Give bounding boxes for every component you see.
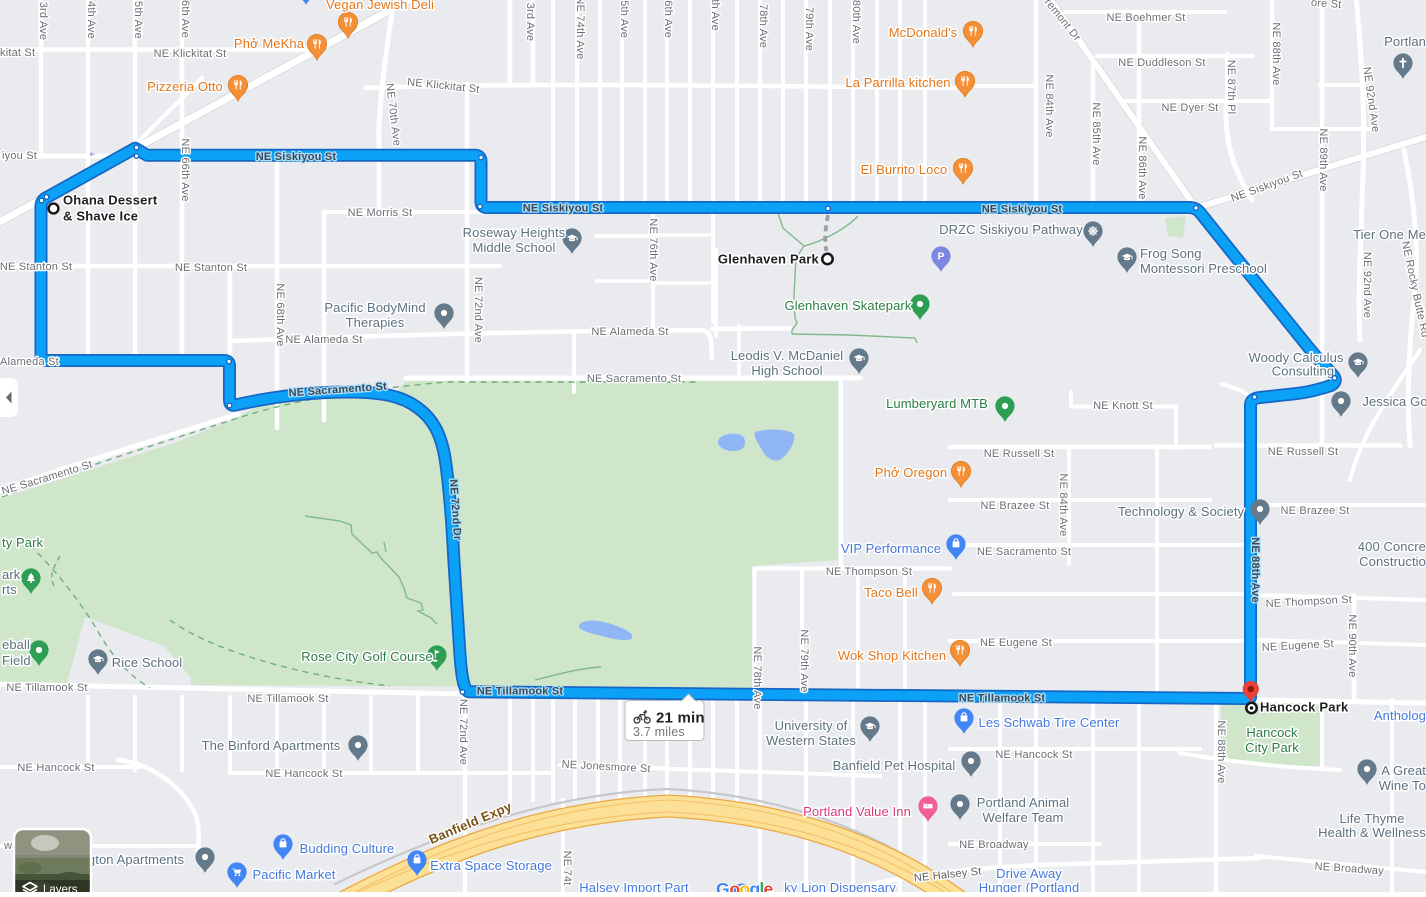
svg-text:7th Ave: 7th Ave <box>709 0 721 31</box>
svg-text:iyou St: iyou St <box>2 150 37 162</box>
svg-text:P: P <box>937 251 944 263</box>
svg-text:Glenhaven Skatepark: Glenhaven Skatepark <box>785 298 912 313</box>
svg-text:6th Ave: 6th Ave <box>179 0 191 38</box>
svg-text:Halsey Import Part: Halsey Import Part <box>579 880 689 892</box>
svg-text:79th Ave: 79th Ave <box>803 7 815 51</box>
svg-text:Western States: Western States <box>766 733 856 748</box>
svg-text:Pacific Market: Pacific Market <box>252 867 335 882</box>
svg-text:Portland Animal: Portland Animal <box>977 795 1070 810</box>
svg-text:ky Lion Dispensary: ky Lion Dispensary <box>784 880 896 892</box>
svg-text:NE 90th Ave: NE 90th Ave <box>1346 614 1358 677</box>
svg-text:NE Russell St: NE Russell St <box>984 448 1054 460</box>
svg-text:NE Thompson St: NE Thompson St <box>826 566 912 578</box>
svg-text:Roseway Heights: Roseway Heights <box>463 225 566 240</box>
svg-text:Technology & Society: Technology & Society <box>1118 504 1245 519</box>
svg-text:NE Duddleson St: NE Duddleson St <box>1118 57 1205 69</box>
svg-text:gton Apartments: gton Apartments <box>88 852 185 867</box>
svg-text:NE Morris St: NE Morris St <box>348 207 413 219</box>
svg-text:rts: rts <box>2 582 17 597</box>
svg-text:Rice School: Rice School <box>112 655 182 670</box>
svg-text:NE 74th Ave: NE 74th Ave <box>574 0 586 60</box>
svg-text:Health & Wellness: Health & Wellness <box>1318 825 1426 840</box>
svg-text:Leodis V. McDaniel: Leodis V. McDaniel <box>731 348 844 363</box>
svg-text:Field: Field <box>2 653 31 668</box>
svg-text:NE 88th Ave: NE 88th Ave <box>1249 537 1261 603</box>
svg-text:kitat St: kitat St <box>0 47 35 59</box>
svg-text:Life Thyme: Life Thyme <box>1339 811 1404 826</box>
svg-text:NE Hancock St: NE Hancock St <box>265 768 342 780</box>
svg-text:NE Tillamook St: NE Tillamook St <box>959 693 1046 705</box>
svg-text:NE Tillamook St: NE Tillamook St <box>6 682 87 694</box>
svg-text:Consulting: Consulting <box>1272 364 1334 379</box>
svg-text:21 min: 21 min <box>656 710 705 727</box>
svg-text:Layers: Layers <box>43 884 78 892</box>
svg-text:Extra Space Storage: Extra Space Storage <box>430 858 552 873</box>
svg-text:Constructio: Constructio <box>1359 554 1426 569</box>
svg-text:NE Hancock St: NE Hancock St <box>17 762 94 774</box>
svg-text:Wok Shop Kitchen: Wok Shop Kitchen <box>838 648 946 663</box>
svg-text:NE 89th Ave: NE 89th Ave <box>1317 128 1329 191</box>
svg-text:Therapies: Therapies <box>346 315 405 330</box>
svg-text:NE Knott St: NE Knott St <box>1093 400 1153 412</box>
svg-text:NE Sacramento St: NE Sacramento St <box>977 546 1071 558</box>
svg-text:Phở Oregon: Phở Oregon <box>875 465 947 480</box>
svg-text:Hancock: Hancock <box>1246 725 1298 740</box>
svg-text:3rd Ave: 3rd Ave <box>37 2 49 41</box>
svg-text:Hunger (Portland: Hunger (Portland <box>979 880 1080 892</box>
svg-text:NE Klickitat St: NE Klickitat St <box>154 48 227 60</box>
svg-text:eball: eball <box>2 637 30 652</box>
svg-text:Portland Value Inn: Portland Value Inn <box>803 804 911 819</box>
svg-text:Taco Bell: Taco Bell <box>864 585 918 600</box>
svg-text:NE 88th Ave: NE 88th Ave <box>1270 22 1282 85</box>
svg-text:80th Ave: 80th Ave <box>850 0 862 44</box>
svg-text:NE Eugene St: NE Eugene St <box>980 637 1052 649</box>
svg-text:NE 74t: NE 74t <box>561 851 573 886</box>
svg-text:NE Russell St: NE Russell St <box>1268 446 1338 458</box>
svg-text:NE Brazee St: NE Brazee St <box>1280 505 1349 517</box>
svg-text:Portlan: Portlan <box>1384 34 1426 49</box>
svg-text:NE 68th Ave: NE 68th Ave <box>274 283 286 346</box>
svg-text:NE 66th Ave: NE 66th Ave <box>179 138 191 201</box>
svg-text:Antholog: Antholog <box>1374 708 1426 723</box>
svg-text:76th Ave: 76th Ave <box>662 0 674 38</box>
svg-text:Jessica Go: Jessica Go <box>1362 394 1426 409</box>
svg-text:VIP Performance: VIP Performance <box>841 541 941 556</box>
svg-text:A Great: A Great <box>1381 763 1426 778</box>
svg-text:Budding Culture: Budding Culture <box>300 841 395 856</box>
svg-text:Les Schwab Tire Center: Les Schwab Tire Center <box>979 715 1121 730</box>
svg-text:& Shave Ice: & Shave Ice <box>63 209 138 224</box>
svg-text:Frog Song: Frog Song <box>1140 246 1202 261</box>
svg-text:NE 78th Ave: NE 78th Ave <box>751 646 763 709</box>
svg-text:NE Sacramento St: NE Sacramento St <box>587 373 681 385</box>
svg-text:City Park: City Park <box>1245 740 1299 755</box>
svg-text:78th Ave: 78th Ave <box>757 4 769 48</box>
svg-text:NE 79th Ave: NE 79th Ave <box>798 629 810 692</box>
svg-text:NE Stanton St: NE Stanton St <box>0 261 72 273</box>
svg-text:NE Siskiyou St: NE Siskiyou St <box>256 151 337 163</box>
svg-text:NE Siskiyou St: NE Siskiyou St <box>523 203 604 215</box>
svg-text:NE Brazee St: NE Brazee St <box>980 500 1049 512</box>
svg-text:Middle School: Middle School <box>473 240 556 255</box>
svg-text:3rd Ave: 3rd Ave <box>524 3 536 42</box>
svg-text:Phở MeKha: Phở MeKha <box>234 36 305 51</box>
svg-text:NE 84th Ave: NE 84th Ave <box>1043 74 1055 137</box>
svg-text:Glenhaven Park: Glenhaven Park <box>718 252 820 267</box>
svg-text:Rose City Golf Course: Rose City Golf Course <box>301 649 432 664</box>
svg-text:Vegan Jewish Deli: Vegan Jewish Deli <box>326 0 434 12</box>
svg-text:Tier One Me: Tier One Me <box>1353 227 1426 242</box>
svg-text:Drive Away: Drive Away <box>996 866 1062 881</box>
svg-text:Banfield Pet Hospital: Banfield Pet Hospital <box>833 758 956 773</box>
svg-text:High School: High School <box>751 363 822 378</box>
svg-text:Wine To: Wine To <box>1379 778 1426 793</box>
svg-text:e: e <box>764 879 774 892</box>
svg-text:Welfare Team: Welfare Team <box>983 810 1064 825</box>
svg-text:ark: ark <box>2 567 21 582</box>
svg-text:Pacific BodyMind: Pacific BodyMind <box>324 300 425 315</box>
svg-text:5th Ave: 5th Ave <box>132 1 144 39</box>
svg-text:NE Dyer St: NE Dyer St <box>1161 102 1218 114</box>
svg-text:NE Stanton St: NE Stanton St <box>175 262 247 274</box>
svg-text:NE 86th Ave: NE 86th Ave <box>1136 136 1148 199</box>
svg-text:NE 84th Ave: NE 84th Ave <box>1057 473 1069 536</box>
svg-text:El Burrito Loco: El Burrito Loco <box>861 162 948 177</box>
svg-text:NE 72nd Ave: NE 72nd Ave <box>457 699 469 765</box>
svg-text:Montessori Preschool: Montessori Preschool <box>1140 261 1267 276</box>
svg-text:3.7 miles: 3.7 miles <box>633 725 685 739</box>
svg-text:Alameda St: Alameda St <box>0 356 59 368</box>
svg-text:NE Tillamook St: NE Tillamook St <box>247 693 328 705</box>
svg-text:Hancock Park: Hancock Park <box>1260 700 1349 715</box>
svg-text:ty Park: ty Park <box>2 535 44 550</box>
svg-text:McDonald's: McDonald's <box>889 25 958 40</box>
svg-text:Pizzeria Otto: Pizzeria Otto <box>147 79 223 94</box>
svg-text:NE Hancock St: NE Hancock St <box>995 749 1072 761</box>
svg-text:NE 76th Ave: NE 76th Ave <box>647 218 659 281</box>
svg-text:NE 72nd Ave: NE 72nd Ave <box>472 277 484 343</box>
svg-text:75th Ave: 75th Ave <box>618 0 630 38</box>
svg-text:G: G <box>716 879 730 892</box>
svg-text:4th Ave: 4th Ave <box>85 1 97 39</box>
svg-text:DRZC Siskiyou Pathway: DRZC Siskiyou Pathway <box>939 222 1083 237</box>
svg-text:La Parrilla kitchen: La Parrilla kitchen <box>845 75 950 90</box>
svg-text:NE 87th Pl: NE 87th Pl <box>1225 60 1237 115</box>
svg-text:NE Alameda St: NE Alameda St <box>285 334 362 346</box>
svg-text:NE Siskiyou St: NE Siskiyou St <box>982 204 1063 216</box>
svg-text:NE 92nd Ave: NE 92nd Ave <box>1361 252 1373 318</box>
svg-text:NE Boehmer St: NE Boehmer St <box>1106 12 1185 24</box>
svg-text:The Binford Apartments: The Binford Apartments <box>202 738 341 753</box>
svg-text:NE 85th Ave: NE 85th Ave <box>1090 102 1102 165</box>
svg-text:NE Tillamook St: NE Tillamook St <box>477 686 564 698</box>
svg-text:NE Alameda St: NE Alameda St <box>591 326 668 338</box>
svg-text:Lumberyard MTB: Lumberyard MTB <box>886 396 988 411</box>
svg-text:University of: University of <box>775 718 848 733</box>
svg-text:NE 88th Ave: NE 88th Ave <box>1215 720 1227 783</box>
svg-text:400 Concre: 400 Concre <box>1358 539 1426 554</box>
svg-text:Ohana Dessert: Ohana Dessert <box>63 193 158 208</box>
svg-text:NE Broadway: NE Broadway <box>959 839 1029 851</box>
